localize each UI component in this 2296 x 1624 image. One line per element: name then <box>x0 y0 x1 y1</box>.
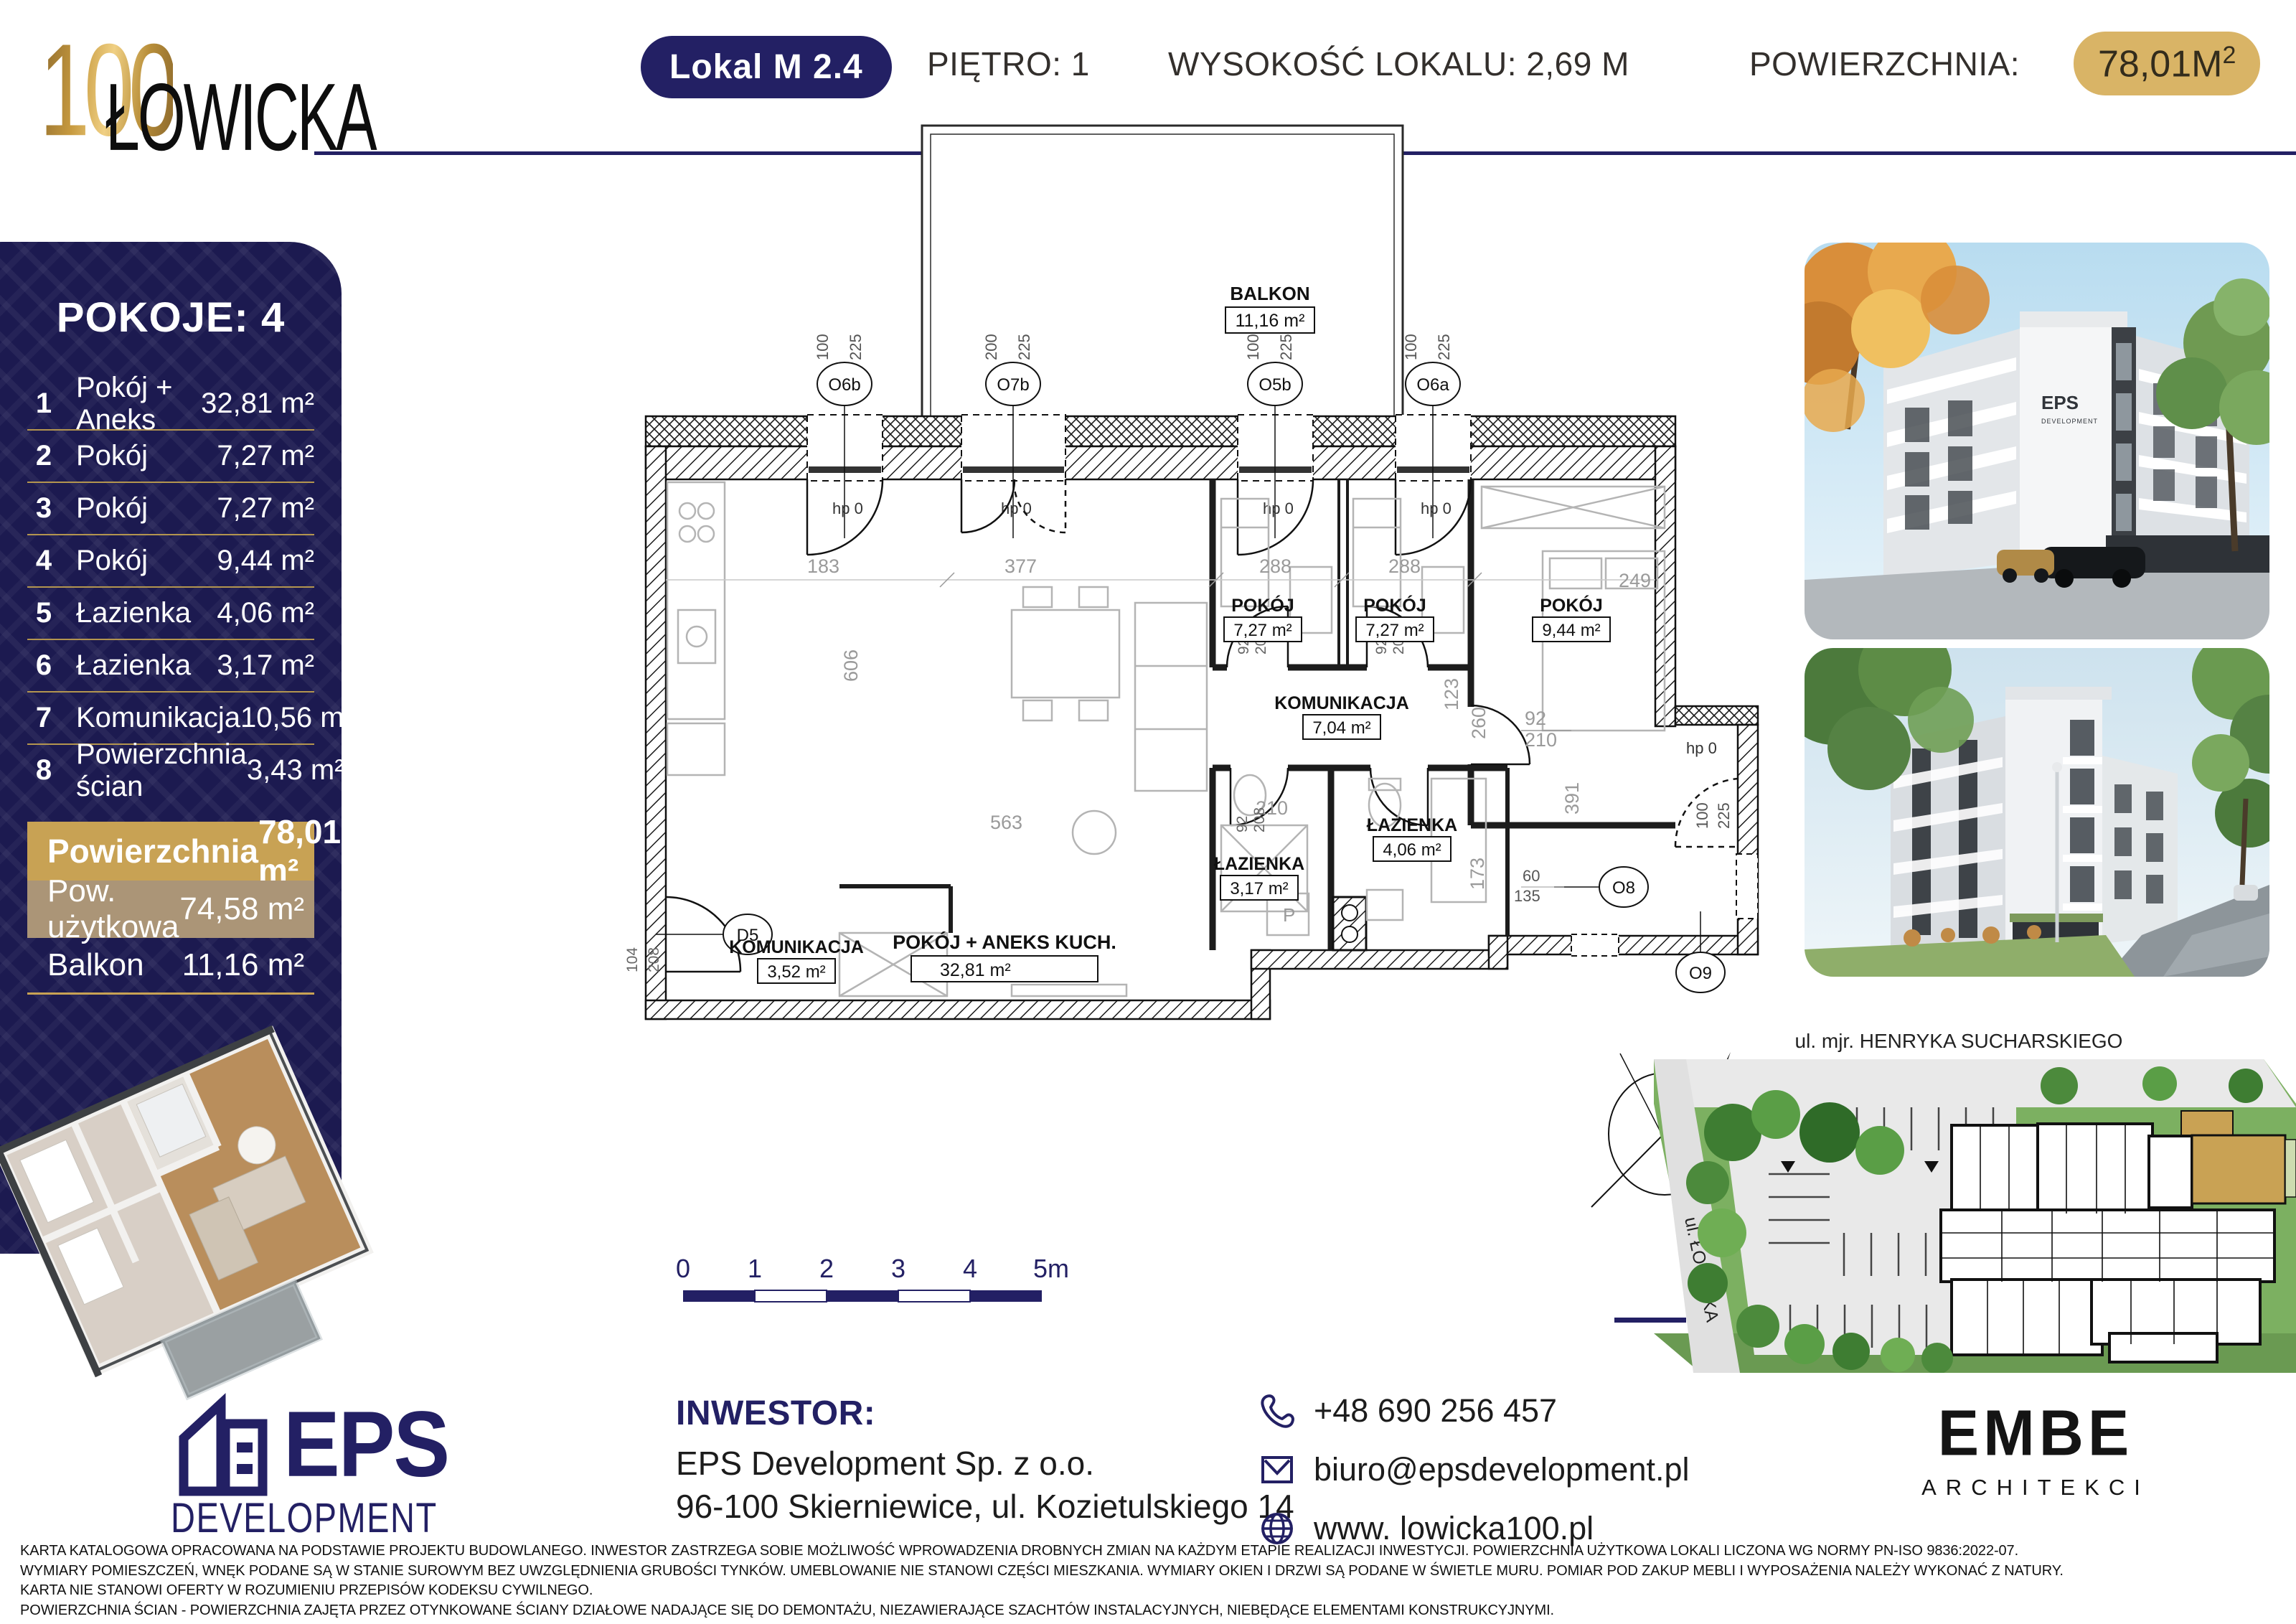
row-value: 7,27 m² <box>217 440 314 472</box>
svg-text:4: 4 <box>963 1254 977 1283</box>
street-label-top: ul. mjr. HENRYKA SUCHARSKIEGO <box>1795 1030 2123 1052</box>
total-area-value: 78,01 m² <box>258 812 351 890</box>
disclaimer-line: KARTA NIE STANOWI OFERTY W ROZUMIENIU PR… <box>20 1581 2280 1601</box>
contact-email-row: biuro@epsdevelopment.pl <box>1259 1451 1690 1488</box>
svg-text:ŁAZIENKA: ŁAZIENKA <box>1214 854 1304 874</box>
svg-text:1: 1 <box>748 1254 762 1283</box>
eps-logo-name: EPS <box>283 1391 448 1498</box>
iso-apartment <box>0 1025 380 1410</box>
room-label-balkon: BALKON <box>1230 283 1309 304</box>
svg-text:3: 3 <box>891 1254 905 1283</box>
window-id-o7b: O7b <box>997 375 1029 395</box>
phone-number: +48 690 256 457 <box>1314 1392 1557 1430</box>
total-area-row: Powierzchnia78,01 m² <box>27 822 314 881</box>
svg-text:POKÓJ + ANEKS KUCH.: POKÓJ + ANEKS KUCH. <box>893 931 1116 953</box>
svg-text:92: 92 <box>1234 816 1251 832</box>
svg-text:hp 0: hp 0 <box>1421 499 1452 517</box>
svg-text:208: 208 <box>1251 807 1268 832</box>
balcony-area-label: Balkon <box>27 947 182 983</box>
area-badge-sup: 2 <box>2222 42 2236 69</box>
svg-text:DEVELOPMENT: DEVELOPMENT <box>2041 418 2098 425</box>
svg-text:288: 288 <box>1388 555 1421 577</box>
balcony-area-value: 11,16 m² <box>182 947 314 983</box>
svg-text:225: 225 <box>847 334 865 360</box>
row-number: 6 <box>27 649 60 682</box>
svg-text:EPS: EPS <box>2041 392 2079 413</box>
table-row: 3Pokój7,27 m² <box>27 483 314 535</box>
legal-disclaimer: KARTA KATALOGOWA OPRACOWANA NA PODSTAWIE… <box>20 1541 2280 1620</box>
svg-text:POKÓJ: POKÓJ <box>1363 594 1426 616</box>
svg-text:2: 2 <box>819 1254 834 1283</box>
window-id-o9: O9 <box>1689 964 1712 983</box>
window-id-o6a: O6a <box>1416 375 1449 395</box>
disclaimer-line: POWIERZCHNIA ŚCIAN - POWIERZCHNIA ZAJĘTA… <box>20 1601 2280 1621</box>
svg-text:288: 288 <box>1259 555 1291 577</box>
row-number: 1 <box>27 388 60 420</box>
unit-badge: Lokal M 2.4 <box>641 36 892 98</box>
table-row: 6Łazienka3,17 m² <box>27 640 314 693</box>
investor-name: EPS Development Sp. z o.o. <box>676 1444 1094 1483</box>
svg-text:100: 100 <box>1244 334 1262 360</box>
eps-logo-sub: DEVELOPMENT <box>171 1493 438 1542</box>
window-id-o8: O8 <box>1612 878 1635 898</box>
scale-bar: 0 1 2 3 4 5m <box>676 1254 1069 1302</box>
svg-text:100: 100 <box>814 334 832 360</box>
row-number: 2 <box>27 440 60 472</box>
phone-icon <box>1259 1393 1295 1429</box>
total-area-label: Powierzchnia <box>27 832 258 870</box>
svg-text:4,06 m²: 4,06 m² <box>1383 840 1441 860</box>
svg-text:7,27 m²: 7,27 m² <box>1233 621 1291 640</box>
area-badge: 78,01M2 <box>2074 32 2260 95</box>
row-number: 5 <box>27 597 60 629</box>
height-label: WYSOKOŚĆ LOKALU: 2,69 M <box>1168 44 1629 83</box>
floor-plan: BALKON 11,16 m² <box>624 108 1779 1328</box>
svg-text:3,52 m²: 3,52 m² <box>767 962 825 982</box>
svg-text:135: 135 <box>1514 887 1540 905</box>
row-number: 7 <box>27 702 60 734</box>
svg-text:225: 225 <box>1715 802 1733 829</box>
embe-logo-name: EMBE <box>1917 1397 2154 1471</box>
outer-walls <box>646 416 1758 1019</box>
svg-text:100: 100 <box>1402 334 1420 360</box>
svg-text:173: 173 <box>1467 858 1488 890</box>
doors <box>666 479 1738 972</box>
svg-text:563: 563 <box>990 812 1022 833</box>
svg-text:5m: 5m <box>1033 1254 1069 1283</box>
brand-logo: 100 ŁOWICKA <box>39 10 334 172</box>
room-table: 1Pokój + Aneks32,81 m² 2Pokój7,27 m² 3Po… <box>27 378 314 796</box>
row-value: 10,56 m² <box>240 702 354 734</box>
embe-logo: EMBE ARCHITEKCI <box>1917 1398 2154 1501</box>
installation-shaft <box>1333 897 1366 950</box>
svg-text:hp 0: hp 0 <box>1263 499 1294 517</box>
investor-heading: INWESTOR: <box>676 1394 875 1433</box>
table-row: 1Pokój + Aneks32,81 m² <box>27 378 314 431</box>
envelope-icon <box>1259 1452 1295 1488</box>
svg-text:ŁAZIENKA: ŁAZIENKA <box>1367 815 1457 835</box>
table-row: 4Pokój9,44 m² <box>27 535 314 588</box>
svg-text:KOMUNIKACJA: KOMUNIKACJA <box>729 937 864 957</box>
svg-text:225: 225 <box>1015 334 1033 360</box>
row-number: 3 <box>27 492 60 525</box>
svg-text:225: 225 <box>1435 334 1453 360</box>
row-value: 9,44 m² <box>217 545 314 577</box>
usable-area-value: 74,58 m² <box>179 891 314 927</box>
svg-text:104: 104 <box>624 947 641 972</box>
svg-text:POKÓJ: POKÓJ <box>1231 594 1294 616</box>
email-address: biuro@epsdevelopment.pl <box>1314 1451 1690 1488</box>
svg-text:377: 377 <box>1004 555 1037 577</box>
table-row: 8Powierzchnia ścian3,43 m² <box>27 745 314 796</box>
room-area-balkon: 11,16 m² <box>1236 311 1305 331</box>
disclaimer-line: WYMIARY POMIESZCZEŃ, WNĘK PODANE SĄ W ST… <box>20 1562 2280 1582</box>
rooms-count-title: POKOJE: 4 <box>0 294 342 342</box>
svg-text:60: 60 <box>1523 867 1540 885</box>
svg-text:208: 208 <box>646 947 662 972</box>
table-row: 7Komunikacja10,56 m² <box>27 693 314 745</box>
svg-text:hp 0: hp 0 <box>1686 739 1717 757</box>
row-label: Pokój <box>60 545 217 577</box>
apartment-3d-render <box>0 998 380 1410</box>
svg-text:92: 92 <box>1525 708 1546 729</box>
row-value: 4,06 m² <box>217 597 314 629</box>
svg-text:3,17 m²: 3,17 m² <box>1230 879 1288 898</box>
brand-logo-name: ŁOWICKA <box>105 63 375 173</box>
svg-text:210: 210 <box>1525 729 1557 751</box>
usable-area-row: Pow. użytkowa74,58 m² <box>27 881 314 938</box>
row-value: 3,17 m² <box>217 649 314 682</box>
contact-phone-row: +48 690 256 457 <box>1259 1392 1557 1430</box>
row-value: 7,27 m² <box>217 492 314 525</box>
washer-label: P <box>1283 904 1295 926</box>
investor-address: 96-100 Skierniewice, ul. Kozietulskiego … <box>676 1487 1294 1526</box>
svg-text:225: 225 <box>1277 334 1295 360</box>
site-plan-map: ul. mjr. HENRYKA SUCHARSKIEGO ul. ŁOWICK… <box>1614 1018 2296 1373</box>
balcony-area-row: Balkon11,16 m² <box>27 938 314 992</box>
building-photo-autumn: EPS DEVELOPMENT <box>1805 243 2269 639</box>
row-label: Łazienka <box>60 649 217 682</box>
row-label: Komunikacja <box>60 702 240 734</box>
table-row: 5Łazienka4,06 m² <box>27 588 314 640</box>
area-badge-value: 78,01M <box>2098 43 2222 85</box>
row-value: 32,81 m² <box>201 388 314 420</box>
row-label: Pokój + Aneks <box>60 372 201 436</box>
svg-text:7,27 m²: 7,27 m² <box>1365 621 1424 640</box>
row-label: Łazienka <box>60 597 217 629</box>
svg-text:606: 606 <box>840 649 862 682</box>
svg-text:0: 0 <box>676 1254 690 1283</box>
row-label: Powierzchnia ścian <box>60 738 247 803</box>
disclaimer-line: KARTA KATALOGOWA OPRACOWANA NA PODSTAWIE… <box>20 1541 2280 1562</box>
gold-divider <box>27 992 314 995</box>
svg-text:260: 260 <box>1468 707 1490 739</box>
svg-text:7,04 m²: 7,04 m² <box>1312 718 1370 738</box>
svg-text:KOMUNIKACJA: KOMUNIKACJA <box>1274 693 1409 713</box>
row-number: 4 <box>27 545 60 577</box>
svg-text:123: 123 <box>1441 678 1462 710</box>
row-value: 3,43 m² <box>247 754 344 787</box>
window-id-o6b: O6b <box>828 375 860 395</box>
svg-text:hp 0: hp 0 <box>832 499 863 517</box>
row-label: Pokój <box>60 440 217 472</box>
svg-text:200: 200 <box>982 334 1000 360</box>
svg-text:POKÓJ: POKÓJ <box>1540 594 1603 616</box>
svg-text:391: 391 <box>1561 782 1583 815</box>
svg-text:100: 100 <box>1693 802 1711 829</box>
building-photo-street <box>1805 648 2269 977</box>
svg-text:183: 183 <box>807 555 839 577</box>
embe-logo-sub: ARCHITEKCI <box>1917 1475 2154 1501</box>
usable-area-label: Pow. użytkowa <box>27 873 179 945</box>
row-number: 8 <box>27 754 60 787</box>
window-id-o5b: O5b <box>1258 375 1291 395</box>
side-windows: O8 60 135 O9 100 225 <box>1514 802 1758 992</box>
row-label: Pokój <box>60 492 217 525</box>
svg-text:32,81 m²: 32,81 m² <box>940 960 1011 980</box>
floor-label: PIĘTRO: 1 <box>927 44 1090 83</box>
table-row: 2Pokój7,27 m² <box>27 431 314 483</box>
svg-text:249: 249 <box>1619 570 1651 591</box>
eps-logo-icon <box>171 1382 286 1497</box>
area-label: POWIERZCHNIA: <box>1749 44 2020 83</box>
svg-text:9,44 m²: 9,44 m² <box>1542 621 1600 640</box>
